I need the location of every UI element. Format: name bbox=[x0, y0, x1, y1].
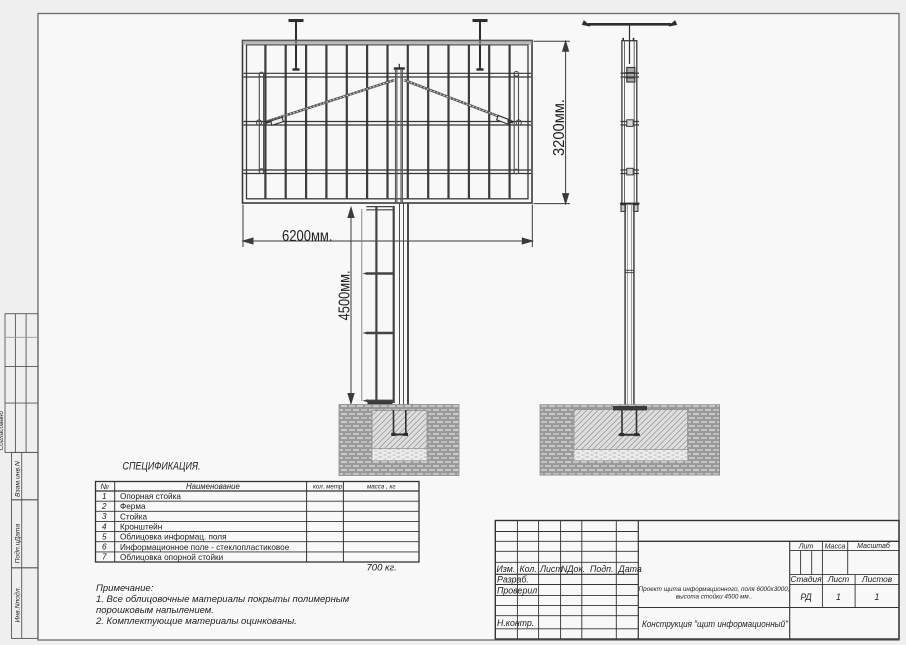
svg-text:порошковым напылением.: порошковым напылением. bbox=[96, 605, 214, 616]
svg-text:Лит: Лит bbox=[798, 543, 814, 550]
svg-text:№: № bbox=[101, 482, 109, 491]
svg-text:Взам.инв.N: Взам.инв.N bbox=[15, 461, 22, 497]
svg-text:NДок.: NДок. bbox=[561, 564, 585, 574]
svg-text:масса , кг: масса , кг bbox=[367, 484, 395, 491]
svg-text:Конструкция "щит информационны: Конструкция "щит информационный" bbox=[642, 619, 789, 630]
svg-text:Облицовка опорной стойки: Облицовка опорной стойки bbox=[120, 553, 223, 562]
svg-text:6: 6 bbox=[102, 543, 107, 552]
svg-text:Ферма: Ферма bbox=[120, 502, 146, 511]
svg-text:Н.контр.: Н.контр. bbox=[497, 618, 534, 628]
svg-text:Разраб.: Разраб. bbox=[497, 575, 529, 585]
svg-text:700 кг.: 700 кг. bbox=[367, 563, 397, 574]
svg-text:2. Комплектующие материалы оци: 2. Комплектующие материалы оцинкованы. bbox=[95, 616, 297, 627]
svg-text:Кол.: Кол. bbox=[520, 564, 537, 574]
svg-text:Лист: Лист bbox=[539, 564, 563, 574]
svg-text:Подп.: Подп. bbox=[590, 564, 613, 574]
svg-text:Дата: Дата bbox=[618, 564, 642, 574]
svg-text:1. Все облицовочные материалы: 1. Все облицовочные материалы покрыты по… bbox=[96, 594, 350, 605]
svg-text:Инв.Nподл.: Инв.Nподл. bbox=[14, 586, 22, 622]
svg-text:1: 1 bbox=[102, 492, 107, 501]
svg-text:Лист: Лист bbox=[827, 574, 849, 584]
svg-text:1: 1 bbox=[836, 592, 841, 602]
svg-text:Проверил: Проверил bbox=[497, 586, 537, 596]
svg-text:Согласовано: Согласовано bbox=[0, 410, 5, 450]
svg-text:2: 2 bbox=[101, 502, 107, 511]
svg-text:Облицовка информац. поля: Облицовка информац. поля bbox=[120, 533, 227, 542]
svg-text:3: 3 bbox=[102, 512, 107, 521]
svg-text:Кронштейн: Кронштейн bbox=[120, 523, 162, 532]
svg-text:7: 7 bbox=[102, 553, 107, 562]
svg-text:1: 1 bbox=[875, 592, 880, 602]
svg-text:Опорная стойка: Опорная стойка bbox=[120, 492, 181, 501]
svg-text:Подп.иДата: Подп.иДата bbox=[14, 523, 22, 563]
svg-text:Стойка: Стойка bbox=[120, 512, 147, 521]
svg-text:Примечание:: Примечание: bbox=[96, 583, 154, 594]
svg-text:Наименование: Наименование bbox=[186, 482, 240, 491]
svg-text:высота стойки 4500 мм..: высота стойки 4500 мм.. bbox=[676, 593, 752, 601]
svg-text:Листов: Листов bbox=[861, 574, 893, 584]
svg-text:6200мм.: 6200мм. bbox=[282, 228, 333, 245]
svg-text:кол. метр: кол. метр bbox=[313, 484, 343, 491]
svg-text:5: 5 bbox=[102, 532, 107, 541]
svg-text:3200мм.: 3200мм. bbox=[551, 99, 568, 156]
svg-text:4: 4 bbox=[102, 522, 107, 531]
svg-text:СПЕЦИФИКАЦИЯ.: СПЕЦИФИКАЦИЯ. bbox=[123, 461, 201, 473]
svg-text:Масса: Масса bbox=[825, 543, 846, 550]
svg-text:Стадия: Стадия bbox=[790, 574, 822, 584]
svg-text:Масштаб: Масштаб bbox=[857, 542, 891, 550]
svg-text:РД: РД bbox=[800, 592, 811, 602]
svg-text:Изм.: Изм. bbox=[497, 564, 516, 574]
svg-text:4500мм.: 4500мм. bbox=[336, 270, 353, 320]
svg-text:Информационное поле - стеклопл: Информационное поле - стеклопластиковое bbox=[120, 543, 290, 552]
svg-text:Проект щита информационного, п: Проект щита информационного, поля 6000х3… bbox=[639, 586, 790, 593]
